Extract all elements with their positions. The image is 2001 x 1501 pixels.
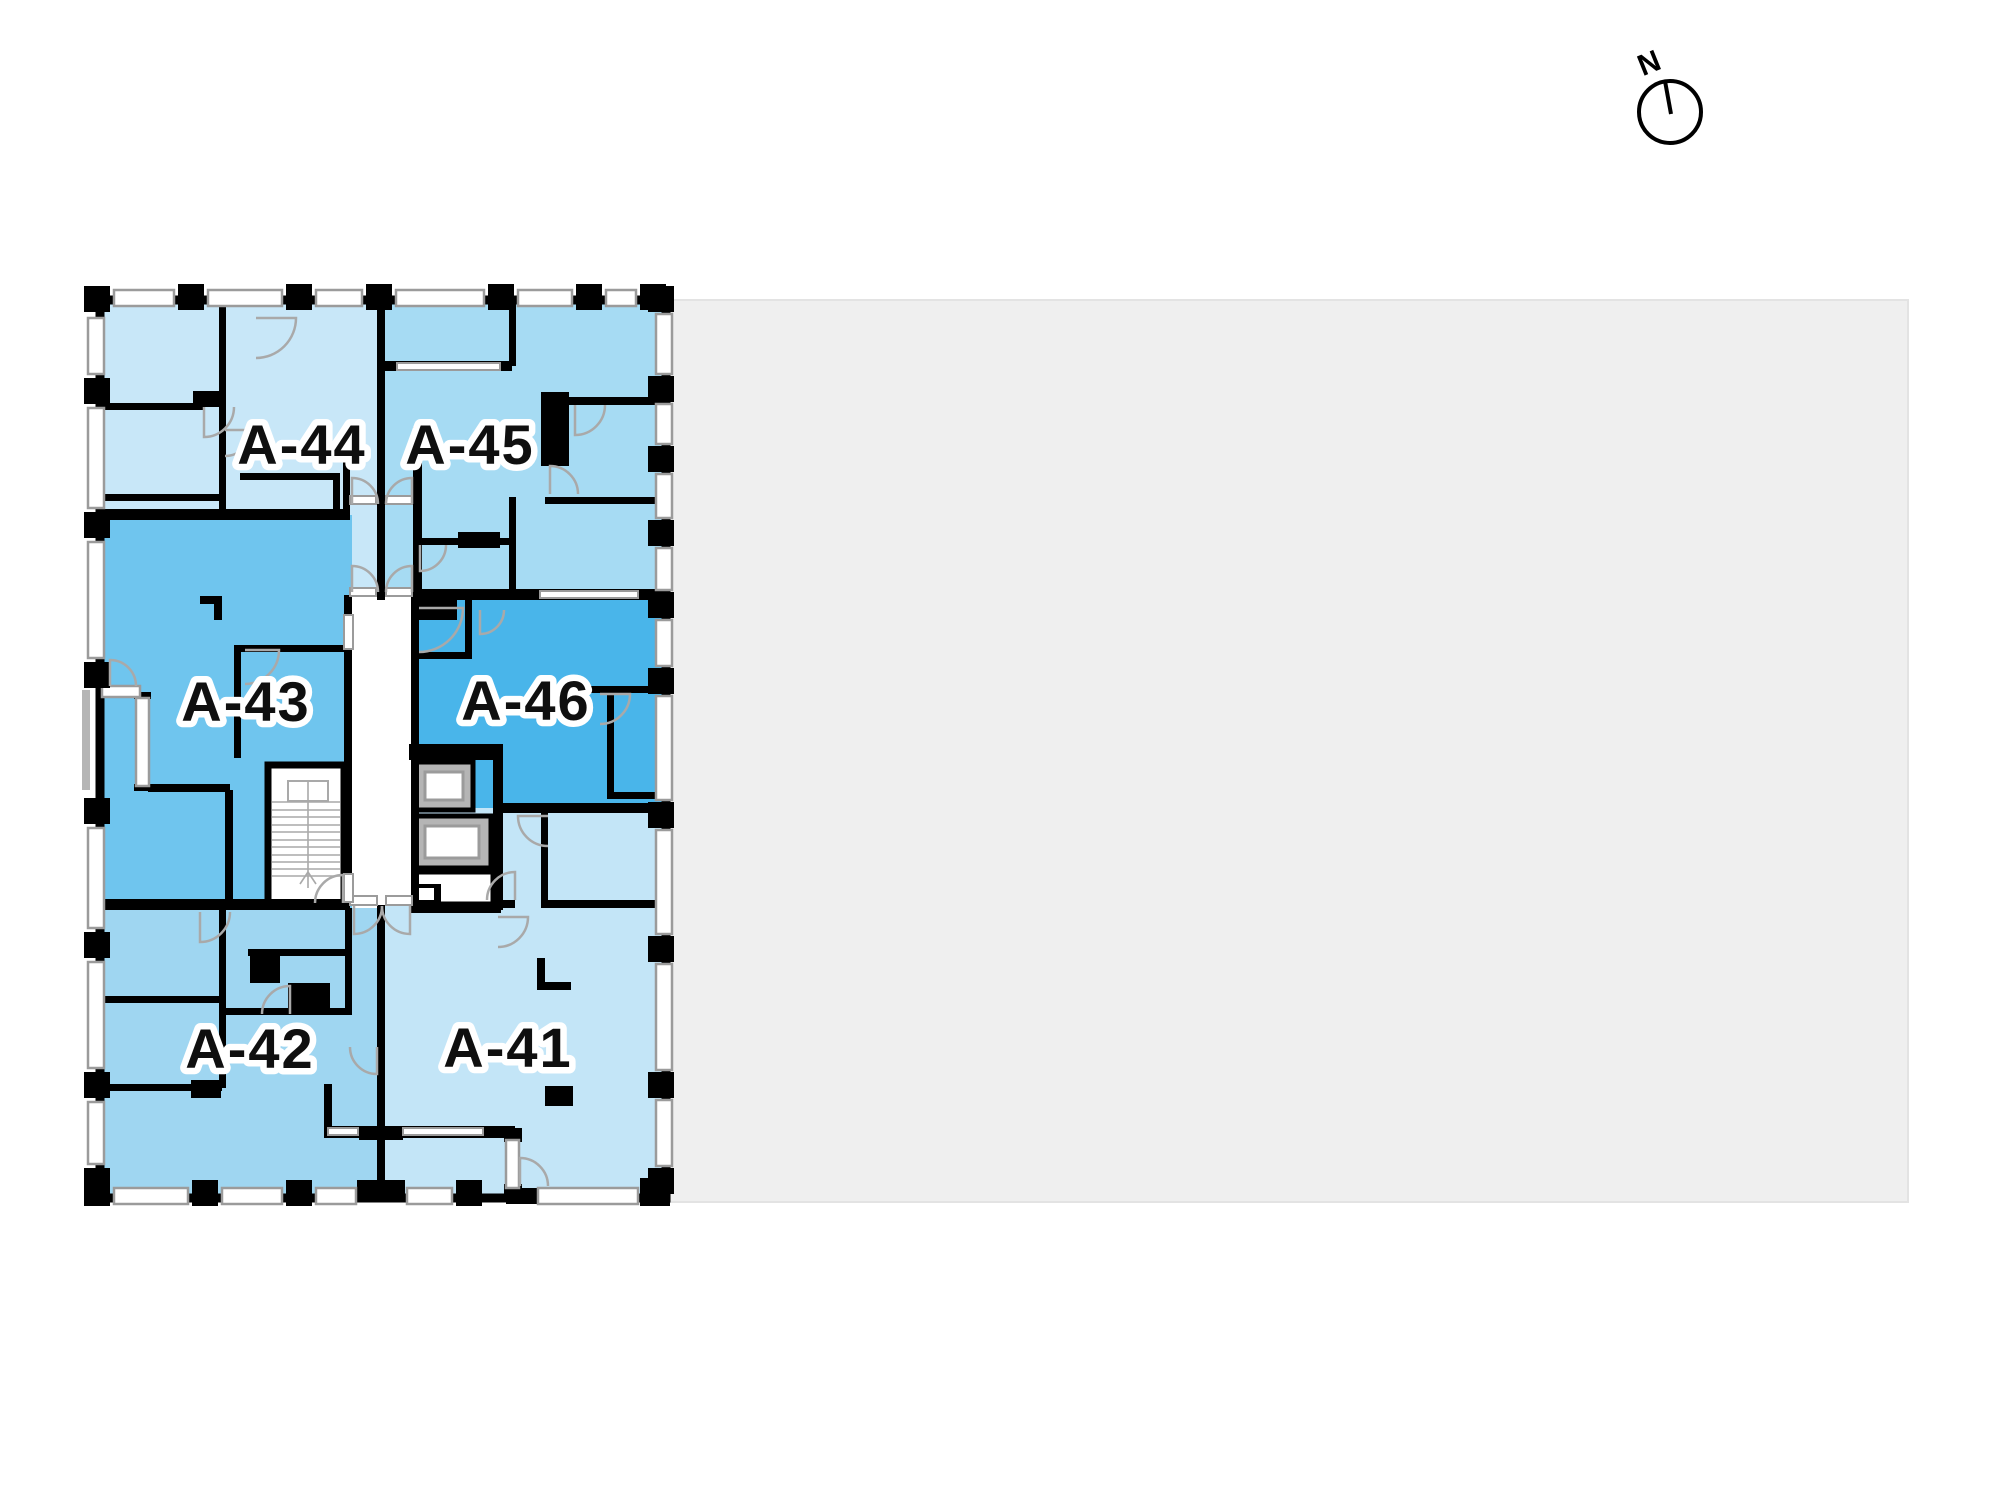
wall-segment xyxy=(545,1086,573,1106)
column xyxy=(648,592,674,618)
wall-segment xyxy=(333,473,340,519)
column xyxy=(648,668,674,694)
wall-segment xyxy=(541,900,666,908)
stairwell xyxy=(268,765,344,905)
elevator-cab xyxy=(425,826,479,858)
window xyxy=(606,290,636,306)
window xyxy=(88,1102,104,1164)
window xyxy=(316,290,362,306)
column xyxy=(84,1072,110,1098)
column xyxy=(576,284,602,310)
column xyxy=(178,284,204,310)
wall-a46-a41 xyxy=(493,803,666,813)
door-threshold xyxy=(403,1128,483,1135)
elevator-1 xyxy=(415,762,473,810)
column xyxy=(456,1180,482,1206)
wall-segment xyxy=(225,790,233,902)
window xyxy=(656,696,672,800)
wall-segment xyxy=(607,686,614,799)
wall-segment xyxy=(509,497,516,595)
wall-segment xyxy=(413,592,457,620)
window xyxy=(656,548,672,590)
floor-plan-page: N xyxy=(0,0,2001,1501)
wall-segment xyxy=(357,1180,405,1200)
window xyxy=(656,620,672,666)
floor-plan: A-44 A-45 A-43 A-46 A-42 A-41 xyxy=(82,284,674,1206)
compass-needle-icon xyxy=(1665,81,1671,114)
unit-label-A-41[interactable]: A-41 xyxy=(443,1016,572,1079)
window xyxy=(88,542,104,658)
door-threshold xyxy=(386,588,412,596)
column xyxy=(84,512,110,538)
window xyxy=(88,408,104,508)
compass-north-label: N xyxy=(1633,44,1665,83)
wall-segment xyxy=(222,1008,352,1015)
compass: N xyxy=(1633,44,1701,143)
column xyxy=(488,284,514,310)
window-sill xyxy=(82,690,90,790)
window xyxy=(656,474,672,518)
window xyxy=(88,318,104,374)
unit-label-A-45[interactable]: A-45 xyxy=(405,413,534,476)
service-room xyxy=(415,872,493,904)
window xyxy=(538,1188,638,1204)
plan-shape xyxy=(419,888,434,900)
wall-segment xyxy=(148,784,230,792)
wall-segment xyxy=(506,1188,538,1204)
window xyxy=(656,964,672,1070)
wall-segment xyxy=(193,391,223,407)
window xyxy=(208,290,282,306)
window xyxy=(114,290,174,306)
window xyxy=(136,698,149,786)
unit-label-A-44[interactable]: A-44 xyxy=(237,413,366,476)
window xyxy=(656,404,672,444)
door-threshold xyxy=(386,896,412,905)
wall-segment xyxy=(250,949,280,983)
door-threshold xyxy=(350,896,377,905)
column xyxy=(84,798,110,824)
column xyxy=(286,284,312,310)
column xyxy=(648,286,674,312)
wall-segment xyxy=(191,1080,221,1098)
wall-segment xyxy=(537,982,571,990)
column xyxy=(648,376,674,402)
wall-segment xyxy=(409,744,501,760)
window xyxy=(88,962,104,1068)
unit-label-A-43[interactable]: A-43 xyxy=(181,670,310,733)
column xyxy=(648,446,674,472)
door-threshold xyxy=(328,1128,358,1135)
unit-label-A-42[interactable]: A-42 xyxy=(185,1017,314,1080)
door-threshold xyxy=(344,615,353,649)
window xyxy=(656,1100,672,1166)
unit-label-A-46[interactable]: A-46 xyxy=(461,669,590,732)
column xyxy=(648,1072,674,1098)
column xyxy=(648,1168,674,1194)
window xyxy=(316,1188,356,1204)
column xyxy=(286,1180,312,1206)
wall-segment xyxy=(493,744,503,910)
site-area xyxy=(670,300,1908,1202)
door-threshold xyxy=(350,496,376,504)
party-wall-top xyxy=(377,300,385,600)
wall-segment xyxy=(465,592,472,656)
column xyxy=(84,662,110,688)
corridor xyxy=(352,595,413,905)
column xyxy=(366,284,392,310)
window xyxy=(396,290,484,306)
column xyxy=(192,1180,218,1206)
column xyxy=(648,520,674,546)
door-threshold xyxy=(397,363,500,370)
column xyxy=(648,802,674,828)
column xyxy=(84,378,110,404)
window xyxy=(506,1140,519,1188)
wall-segment xyxy=(409,904,501,913)
column xyxy=(84,932,110,958)
door-threshold xyxy=(540,591,638,598)
door-threshold xyxy=(344,874,353,902)
wall-segment xyxy=(541,392,569,466)
window xyxy=(114,1188,188,1204)
floor-plan-canvas: N xyxy=(0,0,2001,1501)
window xyxy=(518,290,572,306)
column xyxy=(648,936,674,962)
window xyxy=(88,828,104,928)
window xyxy=(656,830,672,934)
column xyxy=(84,286,110,312)
elevator-2 xyxy=(415,816,491,868)
wall-segment xyxy=(100,996,222,1003)
window xyxy=(222,1188,282,1204)
wall-segment xyxy=(493,900,515,908)
door-threshold xyxy=(386,496,412,504)
wall-segment xyxy=(100,403,204,410)
elevator-cab xyxy=(425,772,463,800)
door-threshold xyxy=(350,588,376,596)
column xyxy=(84,1180,110,1206)
wall-segment xyxy=(545,497,666,504)
wall-segment xyxy=(345,908,352,1015)
wall-segment xyxy=(100,494,222,501)
wall-segment xyxy=(288,983,330,1009)
wall-segment xyxy=(541,813,548,908)
wall-segment xyxy=(458,532,500,548)
wall-segment xyxy=(214,596,222,620)
window xyxy=(656,314,672,374)
window xyxy=(407,1188,452,1204)
